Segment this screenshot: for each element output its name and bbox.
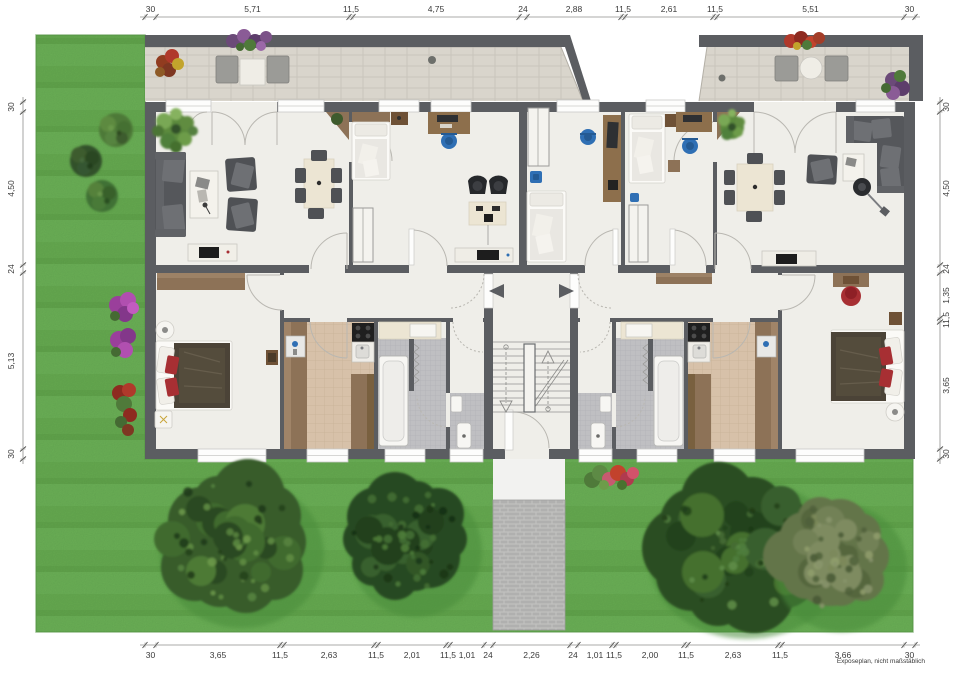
svg-text:11,5: 11,5 (368, 650, 384, 660)
svg-text:3,65: 3,65 (941, 377, 951, 394)
svg-text:11,5: 11,5 (606, 650, 622, 660)
svg-text:24: 24 (6, 264, 16, 274)
svg-text:2,63: 2,63 (321, 650, 338, 660)
svg-text:1,01: 1,01 (459, 650, 476, 660)
svg-text:3,65: 3,65 (210, 650, 227, 660)
svg-text:4,75: 4,75 (428, 4, 445, 14)
svg-text:30: 30 (6, 102, 16, 112)
svg-text:11,5: 11,5 (678, 650, 694, 660)
svg-text:11,5: 11,5 (615, 4, 631, 14)
svg-text:11,5: 11,5 (772, 650, 788, 660)
svg-text:4,50: 4,50 (941, 180, 951, 197)
svg-text:30: 30 (146, 650, 156, 660)
svg-text:4,50: 4,50 (6, 180, 16, 197)
svg-text:11,5: 11,5 (941, 312, 951, 328)
svg-text:11,5: 11,5 (343, 4, 359, 14)
svg-text:1,35: 1,35 (941, 287, 951, 304)
svg-text:24: 24 (568, 650, 578, 660)
svg-text:2,88: 2,88 (566, 4, 583, 14)
svg-text:30: 30 (941, 102, 951, 112)
svg-text:5,71: 5,71 (244, 4, 261, 14)
svg-text:11,5: 11,5 (440, 650, 456, 660)
svg-text:2,63: 2,63 (725, 650, 742, 660)
svg-text:11,5: 11,5 (272, 650, 288, 660)
svg-text:5,51: 5,51 (802, 4, 819, 14)
svg-text:30: 30 (146, 4, 156, 14)
svg-text:30: 30 (6, 449, 16, 459)
svg-text:Exposeplan, nicht maßstäblich: Exposeplan, nicht maßstäblich (837, 658, 926, 665)
svg-text:1,01: 1,01 (587, 650, 604, 660)
svg-text:2,61: 2,61 (661, 4, 678, 14)
svg-text:2,01: 2,01 (404, 650, 421, 660)
svg-text:24: 24 (483, 650, 493, 660)
svg-text:5,13: 5,13 (6, 352, 16, 369)
svg-text:2,26: 2,26 (523, 650, 540, 660)
svg-text:2,00: 2,00 (642, 650, 659, 660)
svg-text:11,5: 11,5 (707, 4, 723, 14)
svg-text:24: 24 (941, 264, 951, 274)
svg-text:24: 24 (518, 4, 528, 14)
svg-text:30: 30 (941, 449, 951, 459)
svg-text:30: 30 (905, 4, 915, 14)
